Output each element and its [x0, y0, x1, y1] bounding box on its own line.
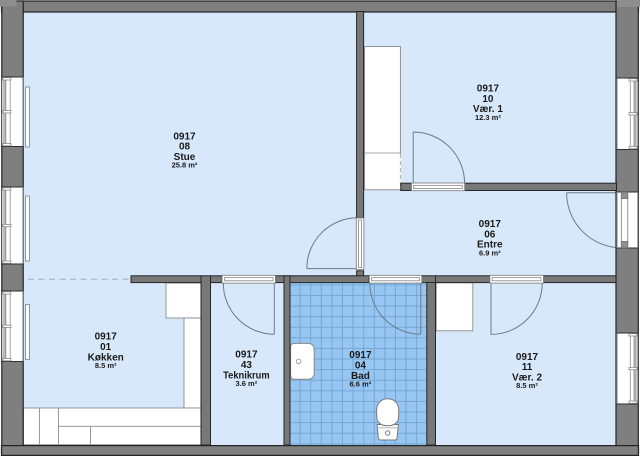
svg-text:0917: 0917 [516, 352, 539, 363]
svg-text:08: 08 [179, 142, 191, 153]
svg-text:0917: 0917 [477, 84, 500, 95]
svg-text:11: 11 [522, 362, 533, 373]
svg-text:6.9 m²: 6.9 m² [479, 248, 501, 257]
svg-text:12.3 m²: 12.3 m² [475, 113, 501, 122]
svg-text:25.8 m²: 25.8 m² [172, 161, 198, 170]
svg-text:0917: 0917 [479, 219, 502, 230]
svg-text:10: 10 [482, 94, 494, 105]
svg-text:0917: 0917 [173, 131, 196, 142]
svg-text:6.6 m²: 6.6 m² [350, 379, 372, 388]
svg-text:01: 01 [100, 342, 112, 353]
svg-text:0917: 0917 [235, 350, 258, 361]
svg-text:8.5 m²: 8.5 m² [95, 361, 117, 370]
svg-text:0917: 0917 [349, 350, 372, 361]
svg-text:04: 04 [355, 360, 367, 371]
svg-text:0917: 0917 [95, 332, 118, 343]
svg-text:8.5 m²: 8.5 m² [516, 381, 538, 390]
svg-text:3.6 m²: 3.6 m² [236, 379, 258, 388]
svg-text:06: 06 [484, 229, 496, 240]
svg-text:43: 43 [241, 360, 253, 371]
